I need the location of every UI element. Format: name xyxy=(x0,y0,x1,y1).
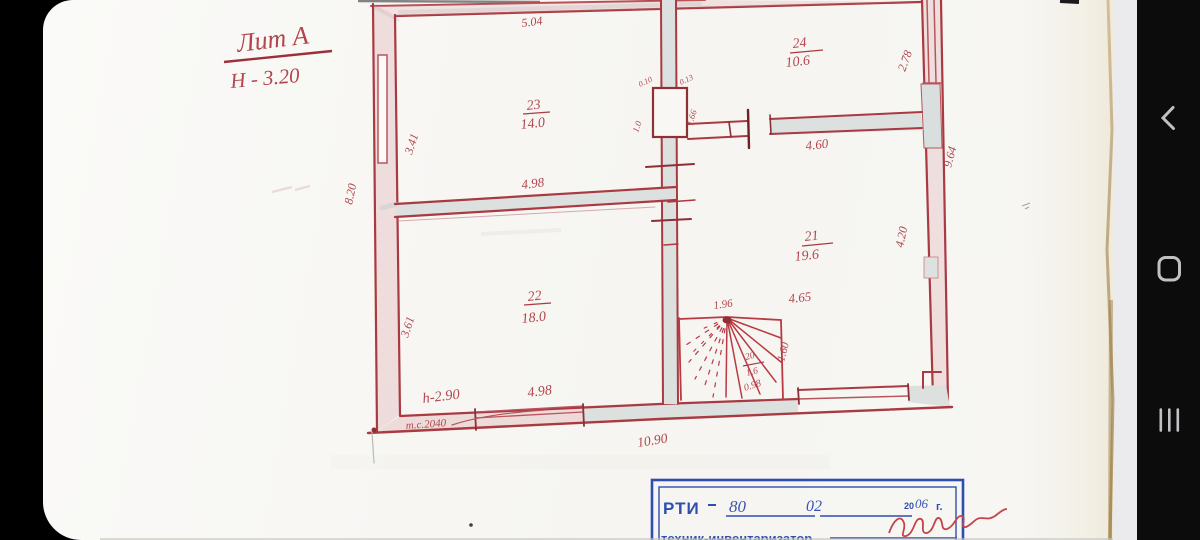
svg-text:20: 20 xyxy=(904,501,914,511)
svg-text:8.20: 8.20 xyxy=(341,182,359,205)
svg-text:22: 22 xyxy=(527,289,542,305)
svg-text:14.0: 14.0 xyxy=(520,115,546,132)
svg-text:24: 24 xyxy=(792,36,807,52)
svg-text:23: 23 xyxy=(526,98,541,114)
svg-text:4.20: 4.20 xyxy=(892,225,910,248)
svg-text:РТИ: РТИ xyxy=(663,499,700,518)
svg-text:06: 06 xyxy=(915,496,929,511)
svg-text:3.61: 3.61 xyxy=(397,315,417,340)
svg-text:2.78: 2.78 xyxy=(895,49,915,74)
svg-text:3.41: 3.41 xyxy=(401,132,421,157)
svg-text:Лит А: Лит А xyxy=(234,20,310,58)
svg-text:4.60: 4.60 xyxy=(805,136,830,153)
svg-text:10.6: 10.6 xyxy=(785,53,811,70)
svg-text:21: 21 xyxy=(804,229,819,245)
svg-text:h-2.90: h-2.90 xyxy=(422,386,462,407)
svg-text:4.98: 4.98 xyxy=(527,383,553,401)
svg-text:20: 20 xyxy=(744,351,756,363)
svg-text:18.0: 18.0 xyxy=(521,309,547,326)
svg-text:19.6: 19.6 xyxy=(794,247,820,264)
svg-text:1.6: 1.6 xyxy=(745,366,759,379)
svg-text:4.98: 4.98 xyxy=(521,174,546,192)
svg-text:4.65: 4.65 xyxy=(788,289,813,306)
svg-text:1.0: 1.0 xyxy=(630,119,643,133)
svg-text:80: 80 xyxy=(729,497,747,516)
svg-text:0.10: 0.10 xyxy=(637,75,653,89)
svg-text:1.60: 1.60 xyxy=(775,341,792,363)
svg-text:Н - 3.20: Н - 3.20 xyxy=(228,63,301,93)
svg-text:г.: г. xyxy=(936,501,943,513)
svg-text:0.13: 0.13 xyxy=(678,73,694,87)
svg-text:1.96: 1.96 xyxy=(713,297,734,312)
svg-text:02: 02 xyxy=(806,498,822,515)
svg-text:10.90: 10.90 xyxy=(636,430,669,450)
svg-text:5.04: 5.04 xyxy=(521,14,544,30)
